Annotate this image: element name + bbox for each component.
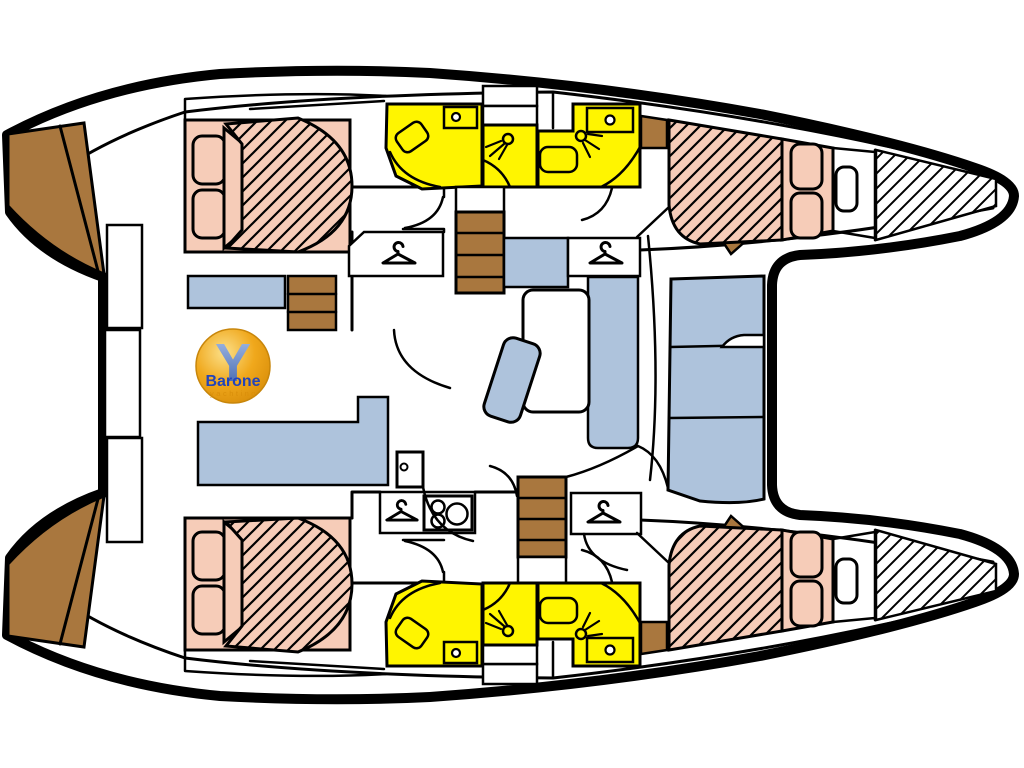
aft-cockpit-bench xyxy=(105,225,142,542)
vanity-cabinet xyxy=(483,664,537,684)
double-bed xyxy=(185,118,352,252)
mattress-hatched xyxy=(226,518,352,652)
wardrobe-fwd-stbd-lower xyxy=(571,493,641,534)
sink-icon xyxy=(587,108,633,132)
companionway-steps-icon xyxy=(456,212,504,293)
companionway-port xyxy=(456,187,504,293)
head-aft xyxy=(386,104,482,189)
mattress-hatched xyxy=(669,526,782,650)
fwd-cockpit-bench xyxy=(668,276,764,503)
stair-landing xyxy=(518,557,566,583)
wardrobe-fwd-stbd xyxy=(568,238,640,276)
mattress-hatched xyxy=(226,118,352,252)
step-block xyxy=(641,116,667,148)
sink-icon xyxy=(587,638,633,662)
stair-landing xyxy=(456,187,504,212)
sink-icon xyxy=(444,107,477,128)
pillow xyxy=(791,144,822,189)
logo-name: Barone xyxy=(205,373,260,390)
cockpit-bench-seat xyxy=(107,225,142,328)
brand-logo: Y Barone yachting xyxy=(196,329,270,403)
step-block xyxy=(641,622,667,654)
vanity-cabinet xyxy=(483,645,537,664)
door-icon xyxy=(397,452,423,487)
companionway-steps-icon xyxy=(518,477,566,557)
sink-icon xyxy=(444,642,477,663)
pillow xyxy=(193,136,225,184)
pillow xyxy=(791,193,822,238)
cockpit-bench-seat xyxy=(105,330,140,437)
bow-shelf xyxy=(836,559,857,603)
catamaran-layout-plan: Y Barone yachting xyxy=(0,0,1024,768)
toilet-icon xyxy=(540,598,577,623)
head-aft xyxy=(386,581,482,666)
galley xyxy=(380,492,475,533)
floorplan-svg: Y Barone yachting xyxy=(0,0,1024,768)
vanity-cabinet xyxy=(483,106,537,125)
bow-shelf xyxy=(836,167,857,211)
logo-tagline: yachting xyxy=(210,389,258,398)
pillow xyxy=(791,581,822,626)
cabin-steps xyxy=(288,276,336,330)
head-mid xyxy=(483,583,537,684)
saloon-sofa xyxy=(588,277,638,448)
cabin-seat xyxy=(188,276,285,308)
pillow xyxy=(791,532,822,577)
pillow xyxy=(193,532,225,580)
double-bed xyxy=(185,518,352,652)
head-mid xyxy=(483,86,537,187)
wardrobe-aft-port xyxy=(349,232,443,276)
saloon-bench-fwd xyxy=(504,238,568,287)
mattress-hatched xyxy=(669,120,782,244)
vanity-cabinet xyxy=(483,86,537,106)
pillow xyxy=(193,190,225,238)
pillow xyxy=(193,586,225,634)
cockpit-bench-seat xyxy=(107,438,142,542)
toilet-icon xyxy=(540,147,577,172)
companionway-stbd xyxy=(518,477,566,583)
